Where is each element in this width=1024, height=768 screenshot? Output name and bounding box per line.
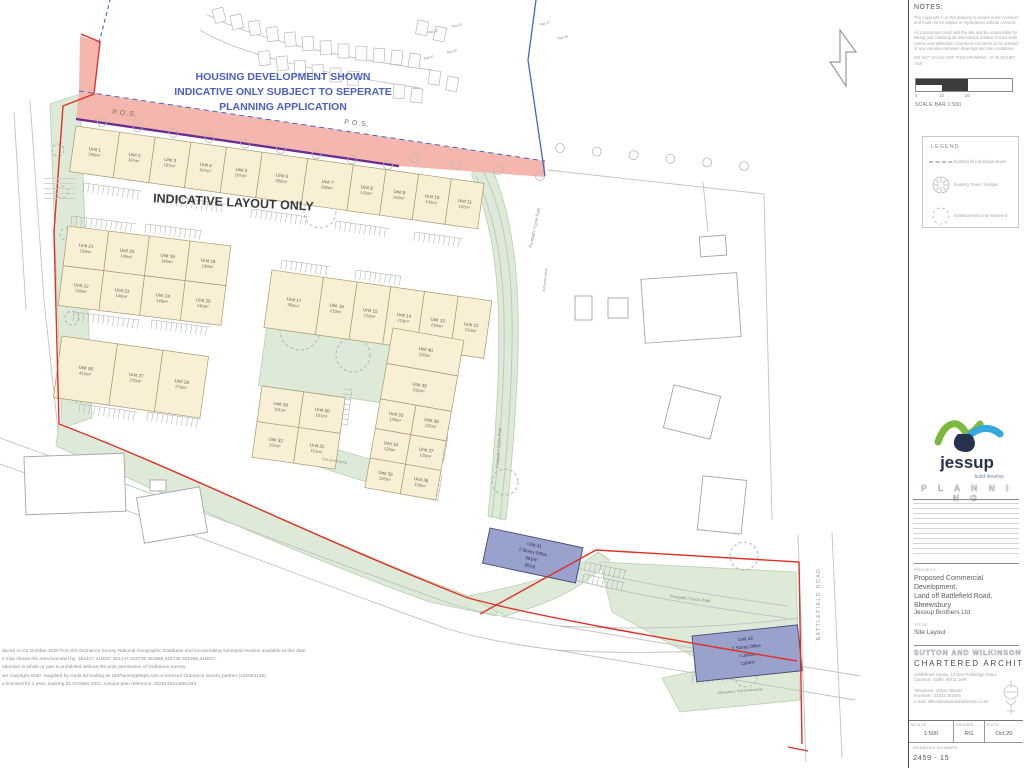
existing-plot bbox=[284, 32, 296, 47]
title-label: TITLE bbox=[914, 622, 1019, 627]
tree-circle bbox=[629, 151, 638, 160]
plot-label: Plot 41 bbox=[423, 54, 434, 61]
scale-tick-20: 20 bbox=[965, 93, 970, 98]
notes-paragraph: DO NOT SCALE OFF THIS DRAWING - IF IN DO… bbox=[914, 55, 1019, 66]
os-licence-line: duced on 01 October 2020 from the Ordnan… bbox=[2, 648, 342, 656]
architect-subtitle: CHARTERED ARCHITECTS bbox=[914, 659, 1019, 668]
existing-plot bbox=[212, 7, 226, 23]
existing-plot bbox=[248, 20, 261, 36]
title-block-panel: NOTES: The copyright © of this drawing i… bbox=[908, 0, 1023, 768]
os-licence-line: oduction in whole or part is prohibited … bbox=[2, 664, 342, 672]
tree-circle bbox=[556, 144, 565, 153]
client-section: CLIENT Jessup Brothers Ltd bbox=[914, 602, 1019, 616]
scale-value: 1:500 bbox=[911, 731, 951, 737]
soft-landscaping-label-2: Soft landscaping bbox=[542, 268, 548, 292]
existing-plot bbox=[356, 46, 367, 60]
plot-label: Plot 37 bbox=[539, 20, 550, 27]
scale-bar: 0 10 20 SCALE BAR 1:500 bbox=[915, 78, 1015, 108]
foul-sewer-line-icon bbox=[928, 159, 954, 165]
tree-circle bbox=[592, 147, 601, 156]
legend-box: LEGEND Existing foul drainage sewer Exis… bbox=[922, 136, 1019, 228]
planning-notes-smallprint bbox=[913, 499, 1019, 561]
tree-dashed-circle bbox=[730, 542, 758, 570]
plot-label: Plot 38 bbox=[557, 34, 568, 41]
logo-tagline: build develop bbox=[975, 474, 1005, 480]
north-arrow-icon bbox=[830, 30, 856, 86]
banner-line1: HOUSING DEVELOPMENT SHOWN bbox=[195, 71, 370, 83]
existing-plot bbox=[338, 44, 349, 58]
existing-plot bbox=[408, 53, 421, 68]
plot-label: Plot 40 bbox=[446, 48, 457, 55]
site-note-annotation bbox=[44, 178, 76, 200]
battlefield-road-label: BATTLEFIELD ROAD bbox=[816, 568, 822, 641]
tree-circle bbox=[703, 158, 712, 167]
drawing-title-section: TITLE Site Layout bbox=[914, 622, 1019, 636]
date-value: Oct.20 bbox=[987, 731, 1021, 737]
legend-item-label: Existing foul drainage sewer bbox=[954, 160, 1006, 165]
existing-plot bbox=[230, 14, 244, 30]
banner-line3: PLANNING APPLICATION bbox=[219, 101, 347, 113]
os-licence-line: wn copyright 2020. Supplied by copla ltd… bbox=[2, 673, 342, 681]
existing-plot bbox=[302, 36, 314, 51]
existing-plot bbox=[428, 70, 441, 85]
scale-bar-graphic bbox=[915, 78, 1013, 92]
existing-plot bbox=[266, 26, 279, 41]
scale-cell: SCALE 1:500 bbox=[909, 721, 954, 743]
project-line: Proposed Commercial Development, bbox=[914, 574, 1019, 592]
date-label: DATE bbox=[987, 722, 1021, 727]
drawn-cell: DRAWN RG bbox=[954, 721, 985, 743]
parking-comb bbox=[335, 221, 390, 237]
existing-plot bbox=[258, 50, 271, 65]
legend-item-label: Existing Trees / Hedges bbox=[954, 183, 998, 188]
meta-table: SCALE 1:500 DRAWN RG DATE Oct.20 bbox=[909, 720, 1023, 743]
drawn-value: RG bbox=[956, 731, 982, 737]
drawn-label: DRAWN bbox=[956, 722, 982, 727]
scale-bar-label: SCALE BAR 1:500 bbox=[915, 102, 1015, 108]
proposed-units: Unit 1240m²Unit 2167m²Unit 3167m²Unit 41… bbox=[53, 126, 491, 500]
footpath-label-1: Footpath / Cycle Path bbox=[528, 207, 541, 248]
parking-comb bbox=[83, 183, 142, 200]
jessup-logo: jessup build develop bbox=[924, 408, 1010, 480]
tree-circle bbox=[740, 162, 749, 171]
scale-label: SCALE bbox=[911, 722, 951, 727]
date-cell: DATE Oct.20 bbox=[985, 721, 1023, 743]
drawing-number-section: DRAWING NUMBER 2459 - 15 bbox=[909, 742, 1023, 764]
tree-circle bbox=[666, 154, 675, 163]
pos-label-2: P.O.S. bbox=[344, 119, 370, 129]
client-name: Jessup Brothers Ltd bbox=[914, 609, 1019, 616]
plot-label: Plot 43 bbox=[451, 22, 462, 29]
legend-title: LEGEND bbox=[931, 144, 1018, 150]
os-licence-line: a licensed for 1 year, expiring 01 Octob… bbox=[2, 681, 342, 689]
parking-comb bbox=[414, 232, 463, 248]
banner-line2: INDICATIVE ONLY SUBJECT TO SEPERATE bbox=[174, 86, 392, 98]
architect-crest-icon bbox=[999, 678, 1023, 723]
existing-plot bbox=[391, 50, 403, 65]
project-line: Land off Battlefield Road, bbox=[914, 592, 1019, 601]
existing-plot bbox=[373, 48, 385, 63]
architect-name: SUTTON AND WILKINSON bbox=[914, 650, 1019, 657]
drawing-number-value: 2459 - 15 bbox=[913, 753, 1019, 762]
drawing-sheet: Plot 43Plot 42Plot 40Plot 41Plot 37Plot … bbox=[0, 0, 1024, 768]
notes-paragraph: The copyright © of this drawing is veste… bbox=[914, 15, 1019, 26]
existing-plot bbox=[393, 84, 405, 99]
scale-tick-0: 0 bbox=[915, 93, 918, 98]
project-label: PROJECT bbox=[914, 567, 1019, 572]
notes-title: NOTES: bbox=[914, 4, 1019, 11]
drawing-title: Site Layout bbox=[914, 629, 1019, 636]
tree-removed-icon bbox=[928, 205, 954, 227]
existing-plot bbox=[446, 76, 459, 92]
os-licence-line: s map shows the area bounded by: 351447,… bbox=[2, 656, 342, 664]
client-label: CLIENT bbox=[914, 602, 1019, 607]
existing-plot bbox=[320, 41, 331, 55]
existing-plot bbox=[276, 56, 288, 71]
existing-plot bbox=[411, 88, 423, 103]
existing-tree-icon bbox=[928, 174, 954, 196]
notes-paragraph: All Contractors must visit the site and … bbox=[914, 30, 1019, 52]
scale-tick-10: 10 bbox=[939, 93, 944, 98]
drawing-number-label: DRAWING NUMBER bbox=[913, 745, 1019, 750]
notes-section: NOTES: The copyright © of this drawing i… bbox=[914, 4, 1019, 66]
legend-item-label: Existing trees to be removed bbox=[954, 214, 1007, 219]
unit41-building: Unit 41 2 Storey Office 881m² (B1a) bbox=[483, 528, 583, 583]
logo-wordmark: jessup bbox=[939, 453, 994, 472]
os-licence-block: duced on 01 October 2020 from the Ordnan… bbox=[2, 648, 342, 689]
logo-bird-body bbox=[954, 434, 975, 452]
